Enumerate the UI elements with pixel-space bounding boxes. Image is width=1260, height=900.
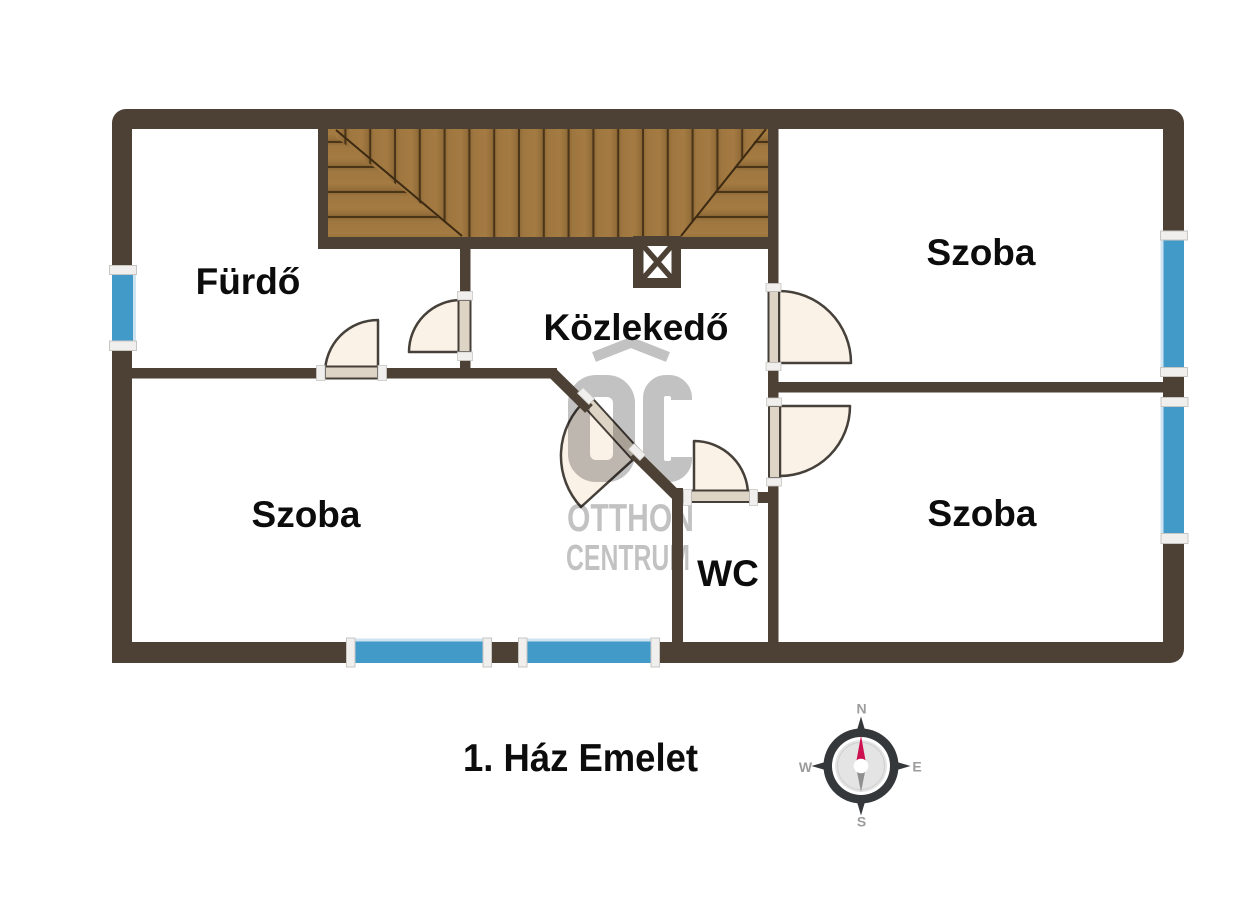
svg-text:CENTRUM: CENTRUM	[566, 537, 690, 578]
svg-text:Szoba: Szoba	[252, 494, 361, 535]
svg-text:W: W	[799, 759, 813, 775]
svg-text:N: N	[856, 701, 866, 717]
svg-text:Fürdő: Fürdő	[196, 261, 301, 302]
svg-text:E: E	[912, 759, 921, 775]
svg-text:1. Ház Emelet: 1. Ház Emelet	[463, 737, 698, 780]
svg-text:Szoba: Szoba	[928, 493, 1037, 534]
svg-text:S: S	[857, 814, 866, 830]
svg-text:Közlekedő: Közlekedő	[543, 307, 728, 348]
svg-text:WC: WC	[697, 553, 759, 594]
svg-text:Szoba: Szoba	[927, 232, 1036, 273]
